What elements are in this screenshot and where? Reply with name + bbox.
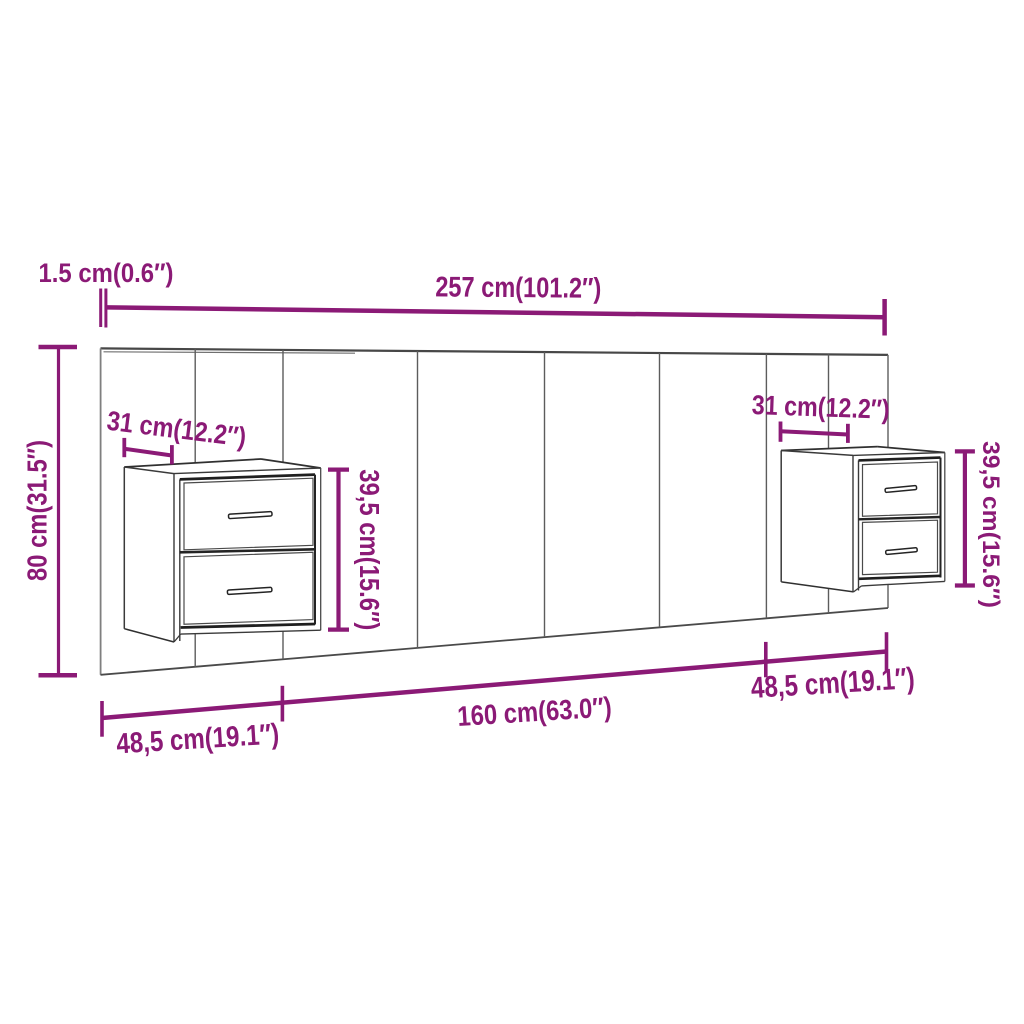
svg-text:257 cm(101.2″): 257 cm(101.2″) <box>435 271 601 304</box>
svg-text:39,5 cm(15.6″): 39,5 cm(15.6″) <box>977 441 1004 608</box>
svg-text:80 cm(31.5″): 80 cm(31.5″) <box>22 440 53 581</box>
svg-text:39,5 cm(15.6″): 39,5 cm(15.6″) <box>354 469 385 630</box>
svg-text:1.5 cm(0.6″): 1.5 cm(0.6″) <box>39 258 174 288</box>
svg-text:31 cm(12.2″): 31 cm(12.2″) <box>751 389 890 425</box>
